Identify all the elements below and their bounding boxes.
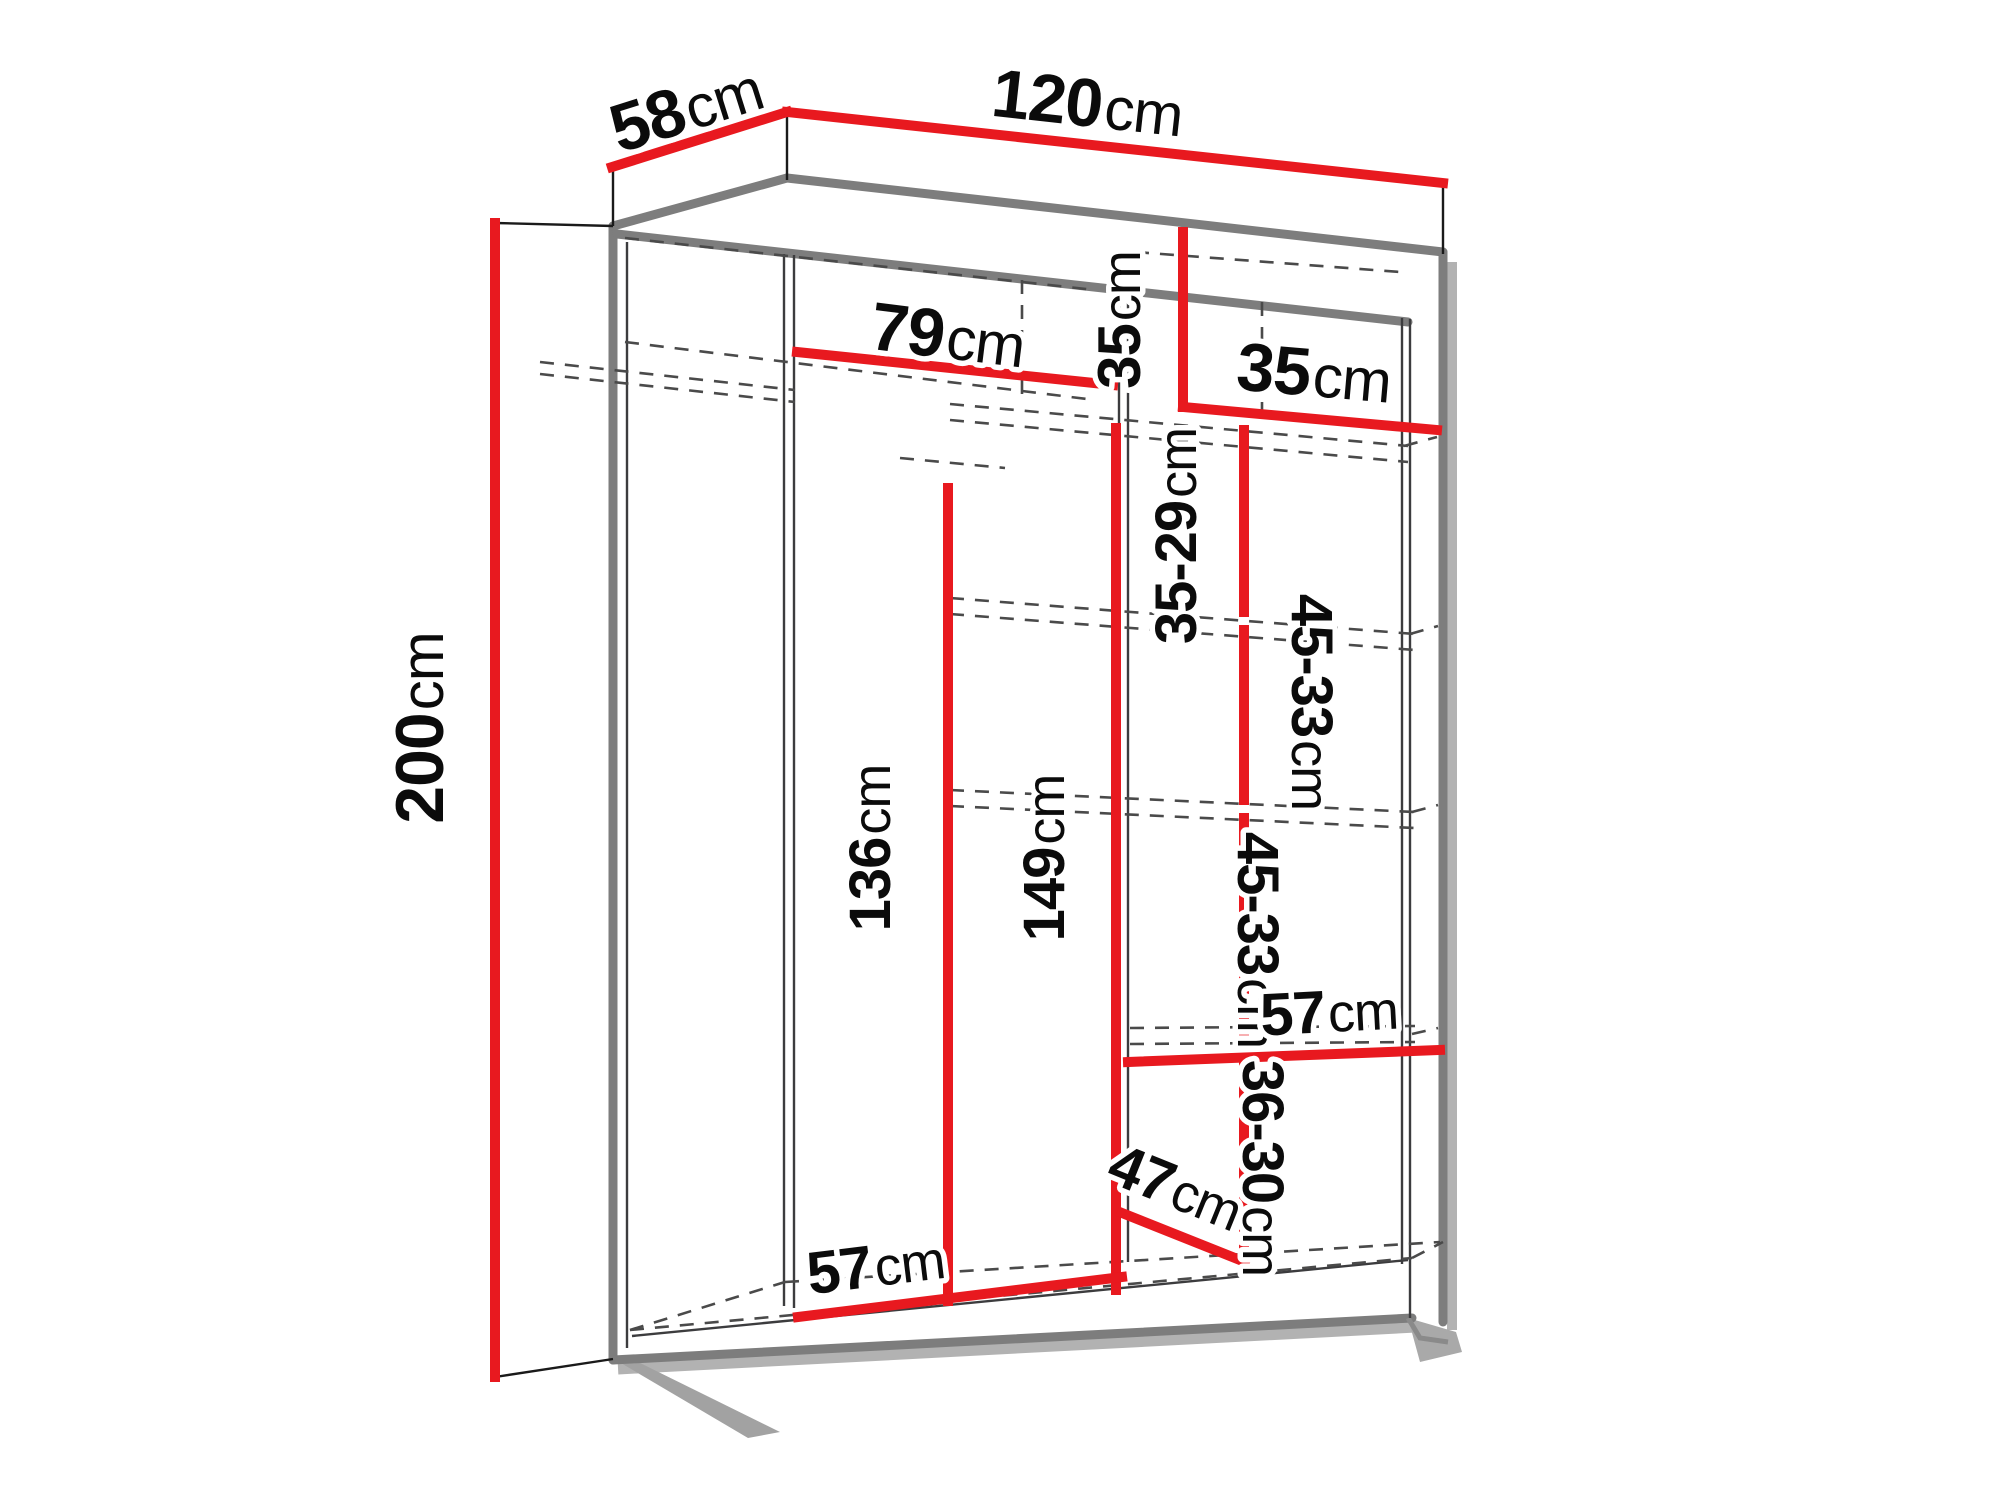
label-shelf-gap-top: 35-29cm [1144, 428, 1209, 644]
label-rod-clearance: 136cm [838, 765, 903, 932]
label-height: 200cm [382, 632, 458, 823]
label-right-shelf-width: 57cm [1258, 974, 1399, 1048]
height-bottom-tick [495, 1359, 613, 1377]
diagram-canvas: 58cm 120cm 200cm 79cm 35cm 35cm 35-29cm … [0, 0, 2000, 1500]
height-top-tick [495, 223, 613, 226]
label-depth: 58cm [601, 49, 771, 168]
label-cubby-height: 35cm [1086, 251, 1153, 389]
label-shelf-gap-upper: 45-33cm [1279, 594, 1344, 810]
label-bottom-gap: 36-30cm [1230, 1060, 1295, 1276]
label-column-height: 149cm [1012, 775, 1077, 942]
wardrobe-dimension-diagram: 58cm 120cm 200cm 79cm 35cm 35cm 35-29cm … [0, 0, 2000, 1500]
